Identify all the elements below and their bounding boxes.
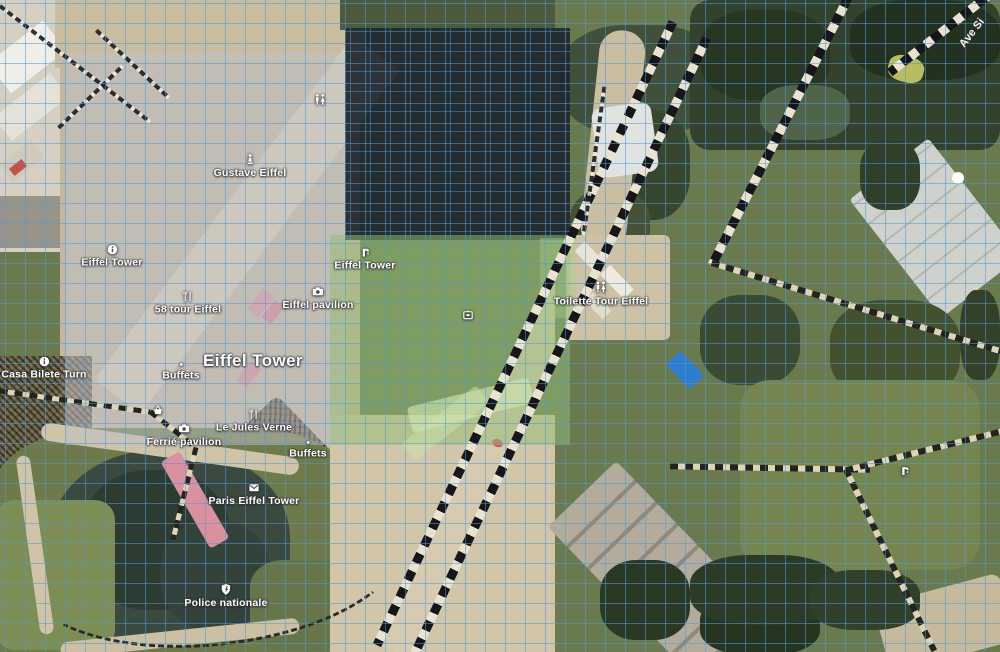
poi-label: Eiffel Tower xyxy=(334,260,395,272)
poi-label: Toilette Tour Eiffel xyxy=(554,296,649,308)
poi-label: 58 tour Eiffel xyxy=(155,304,221,316)
dot-icon xyxy=(177,361,185,369)
tile-grid-overlay-dark xyxy=(345,28,570,240)
drinking-fountain-icon xyxy=(359,247,371,259)
police-icon xyxy=(219,583,232,596)
poi-label: Eiffel Tower xyxy=(81,257,142,269)
poi-casa-bilete-turn[interactable]: Casa Bilete Turn xyxy=(1,356,86,381)
poi-label: Buffets xyxy=(162,370,200,382)
info-icon xyxy=(38,356,50,368)
poi-label: Gustave Eiffel xyxy=(214,167,287,179)
poi-label: Casa Bilete Turn xyxy=(1,369,86,381)
drinking-fountain-icon[interactable] xyxy=(899,465,911,477)
dot-icon xyxy=(304,439,312,447)
poi-label: Buffets xyxy=(289,448,327,460)
restaurant-icon xyxy=(182,291,194,303)
area-title-eiffel-tower[interactable]: Eiffel Tower xyxy=(203,351,303,371)
poi-58-tour-eiffel[interactable]: 58 tour Eiffel xyxy=(155,291,221,316)
poi-le-jules-verne[interactable]: Le Jules Verne xyxy=(216,409,292,434)
poi-eiffel-tower-fountain[interactable]: Eiffel Tower xyxy=(334,247,395,272)
poi-eiffel-tower-info[interactable]: Eiffel Tower xyxy=(81,244,142,269)
poi-label: Ferrié pavilion xyxy=(147,436,222,448)
poi-gustave-eiffel[interactable]: Gustave Eiffel xyxy=(214,153,287,179)
post-office-icon xyxy=(248,481,261,494)
poi-eiffel-pavilion[interactable]: Eiffel pavilion xyxy=(282,285,353,311)
info-icon xyxy=(106,244,118,256)
poi-label: Eiffel pavilion xyxy=(282,299,353,311)
poi-ferrie-pavilion[interactable]: Ferrié pavilion xyxy=(147,422,222,448)
poi-buffets-south[interactable]: Buffets xyxy=(289,439,327,460)
shopping-basket-icon[interactable] xyxy=(152,404,165,417)
camera-icon xyxy=(178,422,191,435)
poi-label: Le Jules Verne xyxy=(216,422,292,434)
camera-icon xyxy=(311,285,324,298)
poi-label: Police nationale xyxy=(184,597,267,609)
picture-frame-icon[interactable] xyxy=(462,309,475,322)
poi-buffets-north[interactable]: Buffets xyxy=(162,361,200,382)
map-canvas[interactable]: Gustave Eiffel Eiffel Tower 58 tour Eiff… xyxy=(0,0,1000,652)
statue-icon xyxy=(243,153,256,166)
poi-toilette-tour-eiffel[interactable]: Toilette Tour Eiffel xyxy=(554,281,649,308)
poi-label: Paris Eiffel Tower xyxy=(209,495,300,507)
restaurant-icon xyxy=(248,409,260,421)
toilets-icon[interactable] xyxy=(313,93,327,107)
toilets-icon xyxy=(594,281,608,295)
poi-paris-eiffel-tower-post[interactable]: Paris Eiffel Tower xyxy=(209,481,300,507)
poi-police-nationale[interactable]: Police nationale xyxy=(184,583,267,609)
